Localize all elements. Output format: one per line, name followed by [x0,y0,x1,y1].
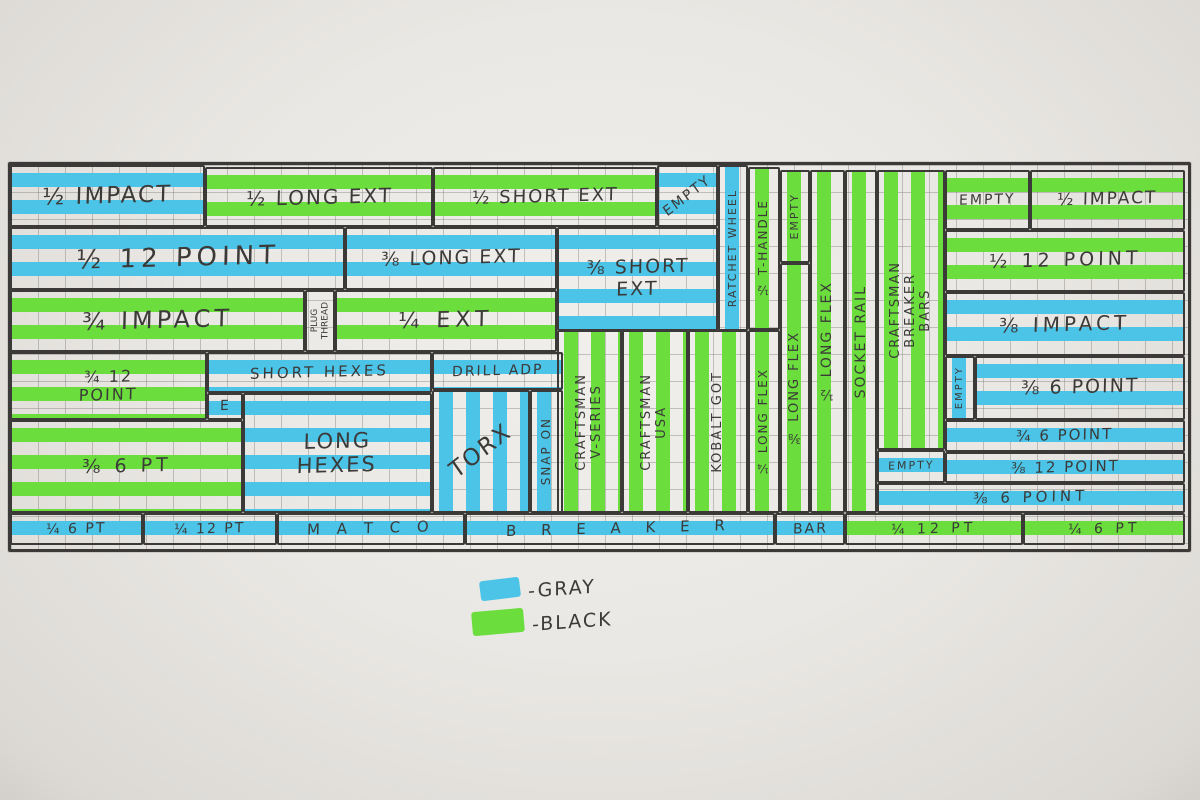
cell-half-long-flex: ½ LONG FLEX [810,170,845,513]
cell-three-quarters-6-point: ¾ 6 POINT [945,420,1185,452]
cell-kobalt: KOBALT GOT [688,330,748,513]
cell-quarter-ext: ¼ EXT [335,290,557,352]
cell-three-eighths-long-flex-label: ⅜ LONG FLEX [788,331,803,445]
cell-half-12-point-left-label: ½ 12 POINT [75,241,280,276]
cell-quarter-6-pt-bottom-right: ¼ 6 PT [1023,513,1185,545]
cell-three-eighths-6-point: ⅜ 6 POINT [975,356,1185,420]
cell-empty-green-col: EMPTY [780,170,810,263]
cell-three-quarters-12-point: ¾ 12 POINT [10,352,207,420]
cell-e-label: E [219,398,230,414]
cell-half-impact-left: ½ IMPACT [10,165,205,227]
cell-half-long-ext: ½ LONG EXT [205,167,433,227]
cell-torx: TORX [432,390,530,513]
cell-half-12-point-right-label: ½ 12 POINT [988,248,1141,274]
cell-matco-label: M A T C O [307,519,435,540]
blue-marker-swatch [479,577,521,602]
legend-row-black: -BLACK [472,610,613,634]
cell-quarter-long-flex-label: ¼ LONG FLEX [757,368,771,475]
cell-half-long-flex-label: ½ LONG FLEX [819,281,835,402]
cell-breaker-label: B R E A K E R [505,517,734,540]
cell-empty-vert-right-label: EMPTY [954,366,966,409]
cell-empty-green-col-label: EMPTY [789,193,802,240]
cell-three-eighths-short-ext-label: ⅜ SHORT EXT [585,256,689,302]
cell-quarter-ext-label: ¼ EXT [398,307,494,335]
cell-half-impact-left-label: ½ IMPACT [42,181,173,211]
cell-half-12-point-right: ½ 12 POINT [945,230,1185,292]
cell-quarter-12-pt-bottom-right-label: ¼ 12 PT [891,520,977,538]
cell-plug-thread-label: PLUG THREAD [310,302,331,339]
cell-long-hexes: LONG HEXES [243,393,432,513]
cell-craftsman-usa: CRAFTSMAN USA [622,330,688,513]
legend-gray-label: -GRAY [528,576,596,603]
cell-empty-under-breaker-label: EMPTY [888,460,935,474]
cell-drill-adp: DRILL ADP [432,352,563,390]
cell-three-eighths-12-point: ⅜ 12 POINT [945,452,1185,483]
cell-three-eighths-6-pt-label: ⅜ 6 PT [81,454,171,478]
cell-half-t-handle-label: ½ T-HANDLE [757,199,771,297]
cell-craftsman-breaker-bars-label: CRAFTSMAN BREAKER BARS [889,261,934,359]
cell-kobalt-label: KOBALT GOT [711,371,726,473]
cell-three-quarters-6-point-label: ¾ 6 POINT [1016,426,1114,446]
cell-three-quarters-impact: ¾ IMPACT [10,290,305,352]
cell-three-eighths-6-point-wide-label: ⅜ 6 POINT [973,488,1089,508]
cell-ratchet-wheel: RATCHET WHEEL [718,165,748,331]
cell-half-short-ext: ½ SHORT EXT [433,167,657,227]
legend-black-label: -BLACK [532,608,612,636]
cell-half-impact-right: ½ IMPACT [1030,170,1185,230]
cell-quarter-12-pt-bottom-left-label: ¼ 12 PT [174,520,246,538]
cell-quarter-6-pt-bottom-left: ¼ 6 PT [10,513,143,545]
cell-empty-top-right: EMPTY [945,170,1030,230]
cell-craftsman-v-series: CRAFTSMAN V-SERIES [557,330,622,513]
cell-empty-under-breaker: EMPTY [877,450,945,483]
cell-half-long-ext-label: ½ LONG EXT [245,184,392,211]
cell-craftsman-usa-label: CRAFTSMAN USA [640,373,670,471]
cell-three-eighths-long-ext-label: ⅜ LONG EXT [380,246,521,272]
cell-quarter-6-pt-bottom-left-label: ¼ 6 PT [46,520,107,538]
cell-quarter-6-pt-bottom-right-label: ¼ 6 PT [1068,520,1141,538]
legend-row-gray: -GRAY [480,578,596,600]
cell-three-eighths-6-point-label: ⅜ 6 POINT [1021,376,1140,401]
cell-empty-top-blue: EMPTY [657,165,718,227]
cell-snap-on-label: SNAP ON [540,417,554,485]
cell-ratchet-wheel-label: RATCHET WHEEL [727,189,740,307]
cell-drill-adp-label: DRILL ADP [452,362,544,381]
cell-three-eighths-6-pt: ⅜ 6 PT [10,420,243,513]
cell-torx-label: TORX [445,419,517,485]
cell-matco: M A T C O [277,513,465,545]
cell-plug-thread: PLUG THREAD [305,290,335,352]
cell-quarter-long-flex: ¼ LONG FLEX [748,330,780,513]
cell-short-hexes-label: SHORT HEXES [250,362,389,383]
cell-three-eighths-impact-label: ⅜ IMPACT [999,311,1131,337]
cell-three-eighths-12-point-label: ⅜ 12 POINT [1010,457,1119,477]
cell-bar: BAR [775,513,845,545]
cell-three-quarters-12-point-label: ¾ 12 POINT [79,367,139,405]
drawer-layout-sheet: -GRAY -BLACK ½ IMPACT½ LONG EXT½ SHORT E… [0,0,1200,800]
cell-empty-top-right-label: EMPTY [959,191,1016,209]
cell-three-eighths-impact: ⅜ IMPACT [945,292,1185,356]
green-marker-swatch [471,608,525,636]
cell-breaker: B R E A K E R [465,513,775,545]
cell-three-quarters-impact-label: ¾ IMPACT [82,305,234,337]
cell-quarter-12-pt-bottom-left: ¼ 12 PT [143,513,277,545]
cell-half-t-handle: ½ T-HANDLE [748,167,780,330]
cell-three-eighths-long-ext: ⅜ LONG EXT [345,227,557,290]
cell-half-12-point-left: ½ 12 POINT [10,227,345,290]
cell-three-eighths-short-ext: ⅜ SHORT EXT [557,227,718,331]
cell-half-impact-right-label: ½ IMPACT [1057,189,1158,211]
cell-craftsman-breaker-bars: CRAFTSMAN BREAKER BARS [877,170,945,450]
cell-e: E [207,393,243,420]
cell-long-hexes-label: LONG HEXES [297,428,378,478]
cell-socket-rail-label: SOCKET RAIL [853,285,869,398]
cell-craftsman-v-series-label: CRAFTSMAN V-SERIES [575,373,605,471]
cell-empty-top-blue-label: EMPTY [661,172,715,220]
cell-short-hexes: SHORT HEXES [207,352,432,393]
cell-socket-rail: SOCKET RAIL [845,170,877,513]
cell-three-eighths-6-point-wide: ⅜ 6 POINT [877,483,1185,513]
legend: -GRAY -BLACK [452,572,712,652]
cell-half-short-ext-label: ½ SHORT EXT [471,185,618,210]
cell-empty-vert-right: EMPTY [945,356,975,420]
cell-three-eighths-long-flex: ⅜ LONG FLEX [780,263,810,513]
cell-quarter-12-pt-bottom-right: ¼ 12 PT [845,513,1023,545]
cell-bar-label: BAR [792,520,827,537]
